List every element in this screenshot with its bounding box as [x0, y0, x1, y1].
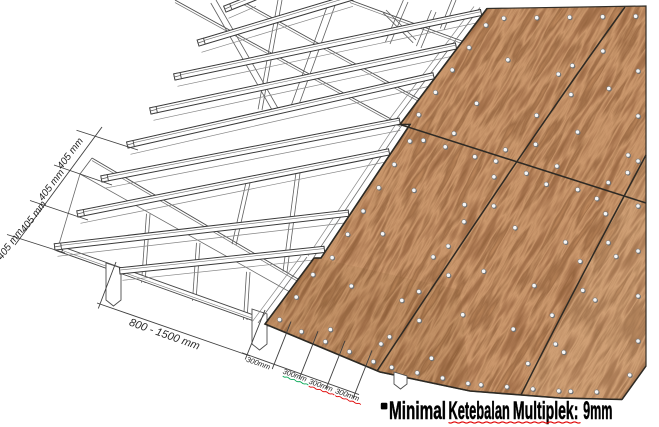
- svg-text:Multiplek:: Multiplek:: [513, 397, 579, 425]
- svg-text:Ketebalan: Ketebalan: [449, 397, 510, 425]
- svg-text:Minimal: Minimal: [389, 397, 446, 425]
- svg-text:9mm: 9mm: [583, 397, 612, 425]
